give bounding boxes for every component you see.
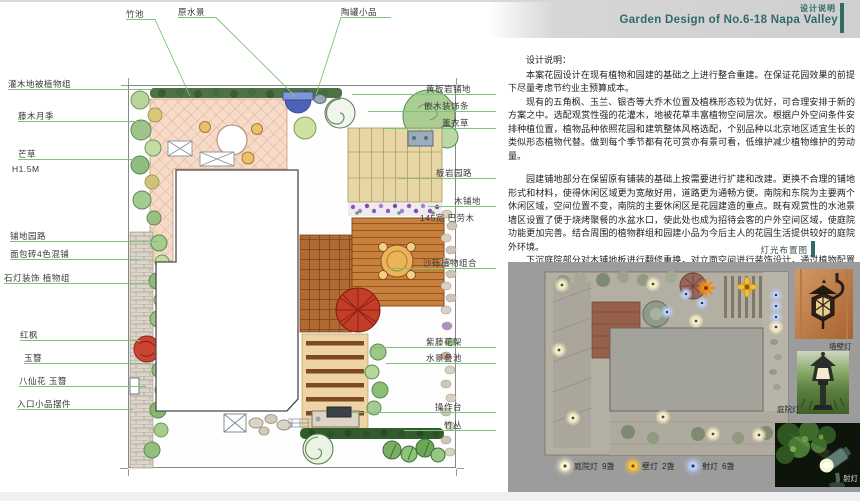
plan-label: 藤木月季 bbox=[18, 110, 54, 122]
lighting-section-title: 灯光布置图 bbox=[760, 244, 808, 256]
wall-lamp-legend-icon bbox=[628, 461, 638, 471]
wisteria-trellis bbox=[336, 288, 380, 332]
courtyard-lamp-photo bbox=[797, 351, 849, 414]
wall-lamp-photo bbox=[795, 269, 853, 339]
lighting-accent-bar bbox=[811, 241, 815, 257]
house-outline bbox=[156, 170, 298, 411]
plan-label: 灌木地被植物组 bbox=[8, 78, 71, 90]
plan-label: 入口小品摆件 bbox=[17, 398, 71, 410]
slate-paving bbox=[348, 128, 442, 202]
plan-label: 黄板岩铺地 bbox=[426, 83, 471, 95]
plan-label: 芒草 bbox=[18, 148, 36, 160]
notes-heading: 设计说明： bbox=[508, 54, 855, 68]
spiral-bush bbox=[303, 434, 333, 464]
plan-label: 面包砖4色混铺 bbox=[10, 248, 69, 260]
plan-label: 紫藤花架 bbox=[426, 336, 462, 348]
courtyard-lamp-legend-icon bbox=[560, 461, 570, 471]
mini-plan-base bbox=[545, 271, 788, 455]
photo-caption: 庭院灯 bbox=[777, 404, 800, 415]
pottery-jar bbox=[314, 95, 326, 104]
plan-label: 原水景 bbox=[178, 6, 205, 18]
plan-label: 嵌木装饰条 bbox=[424, 100, 469, 112]
bottom-margin bbox=[0, 492, 860, 501]
legend-item-courtyard-lamp: 庭院灯9盏 bbox=[560, 461, 614, 472]
plan-label: 铺地园路 bbox=[10, 230, 46, 242]
header-accent-bar bbox=[840, 3, 844, 33]
plan-label: 石灯装饰 植物组 bbox=[4, 272, 70, 284]
plan-label: 玉簪 bbox=[24, 352, 42, 364]
design-sheet: 竹池 原水景 陶罐小品 灌木地被植物组 藤木月季 芒草 H1.5M 铺地园路 面… bbox=[0, 0, 860, 501]
plan-label: 红枫 bbox=[20, 329, 38, 341]
page-title: Garden Design of No.6-18 Napa Valley bbox=[619, 14, 838, 26]
legend-count: 2盏 bbox=[662, 462, 674, 471]
plan-label: 沙砾植物组合 bbox=[423, 257, 477, 269]
legend-item-spotlight: 射灯6盏 bbox=[688, 461, 734, 472]
legend-label: 庭院灯 bbox=[574, 462, 598, 471]
legend-count: 6盏 bbox=[722, 462, 734, 471]
spotlight-legend-icon bbox=[688, 461, 698, 471]
plan-label: 陶罐小品 bbox=[341, 6, 377, 18]
legend-label: 射灯 bbox=[702, 462, 718, 471]
legend-count: 9盏 bbox=[602, 462, 614, 471]
notes-paragraph: 本案花园设计在现有植物和园建的基础之上进行整合重建。在保证花园效果的前提下尽量考… bbox=[508, 69, 855, 96]
plan-label: 操作台 bbox=[435, 401, 462, 413]
entrance-gate bbox=[130, 378, 139, 394]
legend-item-wall-lamp: 壁灯2盏 bbox=[628, 461, 674, 472]
legend-label: 壁灯 bbox=[642, 462, 658, 471]
plan-label: 竹丛 bbox=[444, 419, 462, 431]
notes-paragraph: 园建铺地部分在保留原有铺装的基础上按需要进行扩建和改建。更换不合理的铺地形式和材… bbox=[508, 173, 855, 254]
plan-label: 水景叠池 bbox=[426, 352, 462, 364]
plan-label: 木铺地 bbox=[454, 195, 481, 207]
plan-label: 145宽 巴劳木 bbox=[420, 212, 475, 224]
garden-plan-drawing bbox=[0, 0, 500, 501]
header-tag: 设计说明 bbox=[800, 3, 836, 14]
plan-label: H1.5M bbox=[12, 164, 40, 174]
plan-label: 薰衣草 bbox=[442, 117, 469, 129]
photo-caption: 射灯 bbox=[843, 473, 858, 484]
notes-paragraph: 现有的五角枫、玉兰、银杏等大乔木位置及植株形态较为优好，可合理安排于新的方案之中… bbox=[508, 96, 855, 164]
plan-label: 板岩园路 bbox=[436, 167, 472, 179]
plan-label: 八仙花 玉簪 bbox=[19, 375, 67, 387]
plan-label: 竹池 bbox=[126, 8, 144, 20]
